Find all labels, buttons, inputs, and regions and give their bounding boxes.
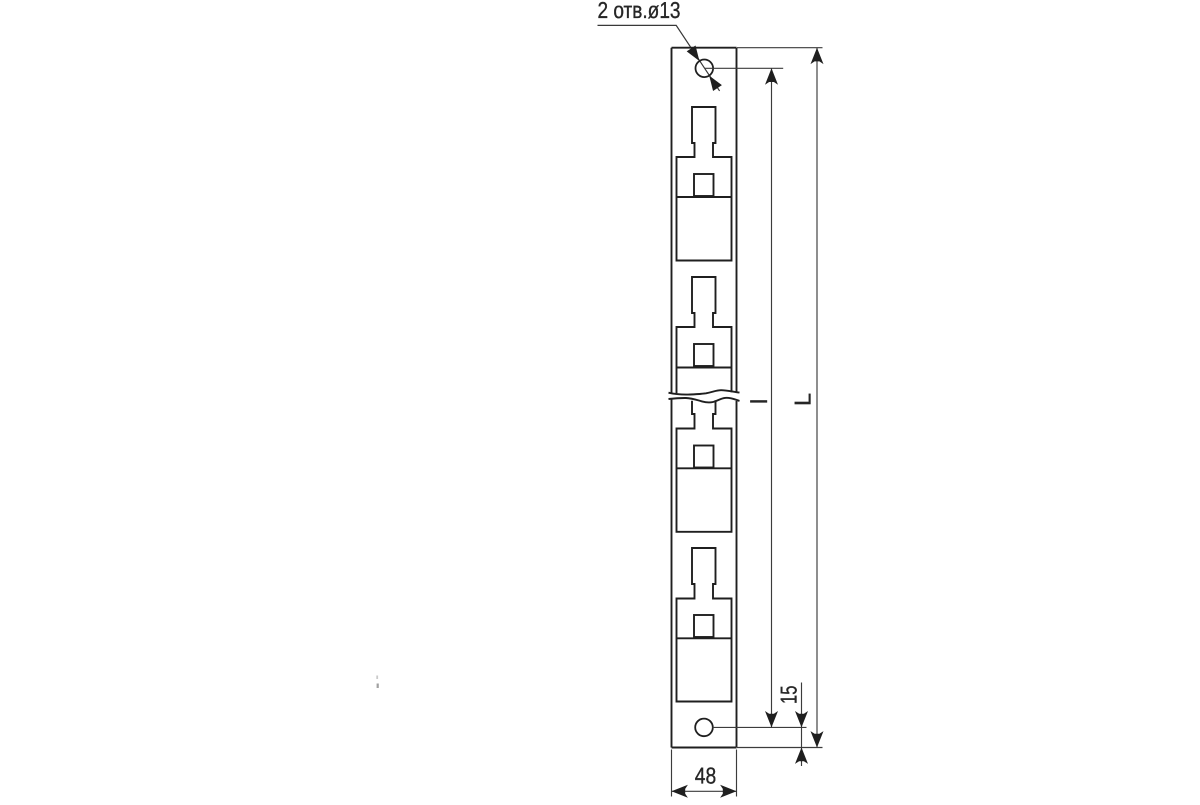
svg-text:L: L — [789, 393, 815, 406]
svg-text:48: 48 — [695, 763, 717, 789]
svg-text:l: l — [746, 399, 772, 404]
svg-text:15: 15 — [776, 686, 802, 705]
svg-text:2 отв.ø13: 2 отв.ø13 — [598, 0, 681, 23]
